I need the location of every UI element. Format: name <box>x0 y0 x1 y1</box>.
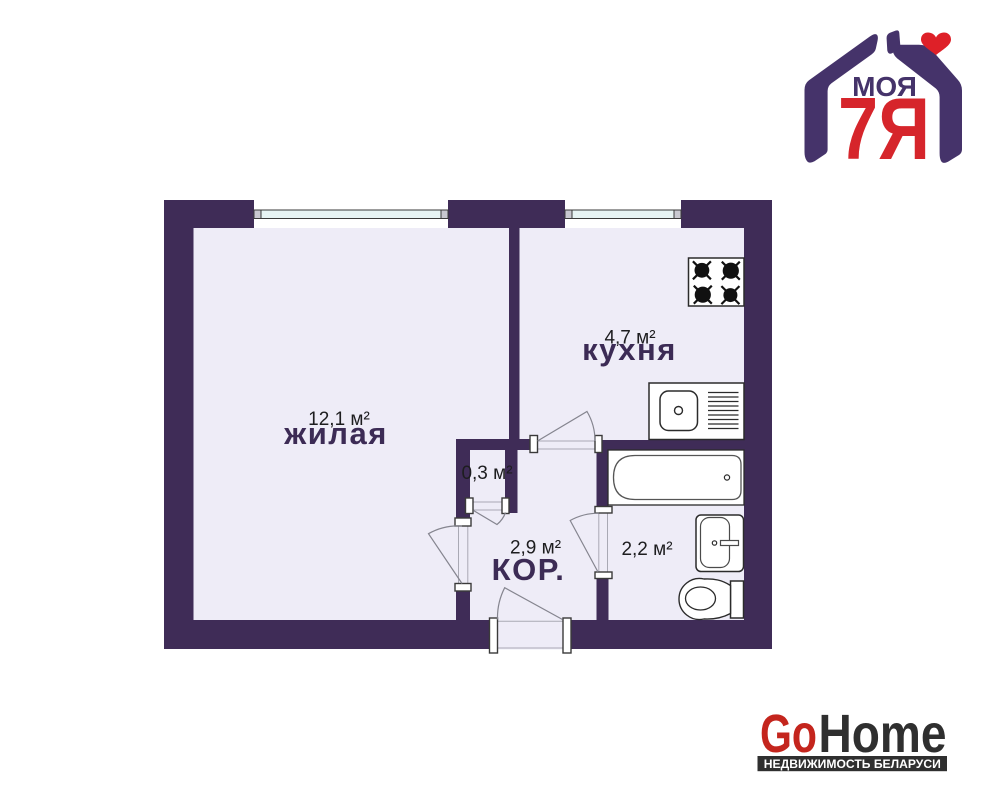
svg-text:КОР.: КОР. <box>492 552 566 587</box>
svg-text:0,3 м²: 0,3 м² <box>461 463 512 484</box>
svg-text:жилая: жилая <box>283 416 388 451</box>
svg-text:НЕДВИЖИМОСТЬ БЕЛАРУСИ: НЕДВИЖИМОСТЬ БЕЛАРУСИ <box>764 757 941 771</box>
svg-text:2,2 м²: 2,2 м² <box>621 539 672 560</box>
svg-text:Go: Go <box>760 704 817 764</box>
svg-text:Home: Home <box>819 704 947 764</box>
svg-text:7Я: 7Я <box>838 79 930 178</box>
svg-text:кухня: кухня <box>582 332 677 367</box>
